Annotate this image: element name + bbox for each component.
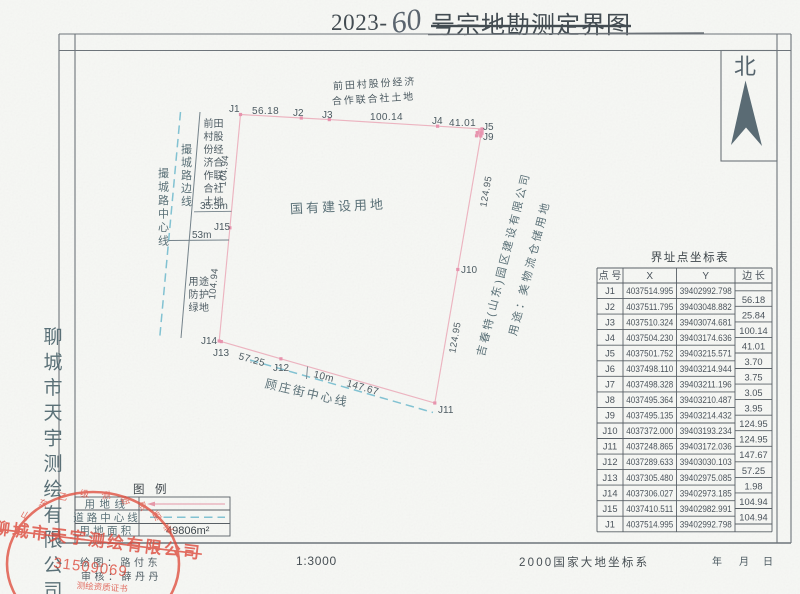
svg-text:4037514.995: 4037514.995 [626, 520, 673, 530]
svg-text:北: 北 [734, 54, 756, 79]
svg-text:60: 60 [389, 3, 424, 41]
svg-text:39403172.036: 39403172.036 [680, 442, 732, 452]
svg-text:39403214.432: 39403214.432 [680, 411, 732, 421]
svg-text:股: 股 [214, 131, 224, 143]
svg-text:作: 作 [204, 170, 214, 182]
svg-text:4037498.110: 4037498.110 [626, 364, 673, 374]
svg-text:X: X [646, 271, 653, 282]
svg-text:J8: J8 [605, 395, 615, 405]
svg-text:4037511.795: 4037511.795 [626, 302, 673, 312]
svg-text:J11: J11 [438, 405, 454, 416]
svg-text:乙: 乙 [58, 491, 69, 502]
svg-text:25.84: 25.84 [742, 310, 765, 320]
svg-text:J4: J4 [605, 333, 615, 343]
svg-text:35.5m: 35.5m [200, 201, 228, 212]
svg-text:124.95: 124.95 [739, 419, 767, 429]
svg-text:39403211.196: 39403211.196 [680, 380, 732, 390]
svg-text:39403215.571: 39403215.571 [680, 348, 732, 358]
svg-text:41.01: 41.01 [449, 118, 476, 129]
svg-text:3.05: 3.05 [744, 388, 762, 398]
svg-text:39402973.185: 39402973.185 [680, 488, 732, 498]
svg-text:J10: J10 [461, 265, 478, 276]
svg-text:测: 测 [101, 490, 111, 501]
svg-text:防: 防 [189, 288, 199, 301]
svg-text:级: 级 [80, 488, 89, 499]
svg-text:57.25: 57.25 [742, 466, 765, 476]
svg-text:4037372.000: 4037372.000 [626, 426, 673, 436]
svg-text:41.01: 41.01 [742, 341, 765, 351]
svg-text:4037501.752: 4037501.752 [626, 348, 673, 358]
svg-text:2000国家大地坐标系: 2000国家大地坐标系 [519, 555, 649, 569]
svg-text:4037305.480: 4037305.480 [626, 473, 673, 483]
svg-text:4037248.865: 4037248.865 [626, 442, 673, 452]
svg-text:J1: J1 [605, 520, 615, 530]
svg-text:份: 份 [204, 144, 214, 156]
svg-text:4037306.027: 4037306.027 [626, 488, 673, 498]
svg-text:1:3000: 1:3000 [296, 554, 337, 568]
svg-text:104.94: 104.94 [739, 513, 767, 523]
svg-text:年: 年 [712, 555, 722, 568]
svg-text:147.67: 147.67 [739, 450, 767, 460]
svg-text:39403030.103: 39403030.103 [680, 457, 732, 467]
svg-text:39403214.944: 39403214.944 [680, 364, 732, 374]
svg-text:地: 地 [199, 301, 209, 314]
svg-text:例: 例 [155, 482, 167, 496]
svg-text:J13: J13 [603, 473, 618, 483]
svg-text:J4: J4 [432, 116, 443, 127]
svg-text:J14: J14 [201, 336, 218, 347]
svg-text:月: 月 [739, 556, 749, 568]
svg-text:56.18: 56.18 [742, 295, 765, 305]
svg-text:3.70: 3.70 [744, 357, 762, 367]
svg-text:J9: J9 [483, 132, 494, 143]
svg-text:39403174.636: 39403174.636 [680, 333, 732, 343]
svg-text:39403193.234: 39403193.234 [680, 426, 732, 436]
svg-text:J6: J6 [605, 364, 615, 374]
svg-text:J2: J2 [605, 302, 615, 312]
svg-text:J1: J1 [605, 286, 615, 296]
svg-text:1.98: 1.98 [744, 481, 762, 491]
svg-text:39402992.798: 39402992.798 [680, 286, 732, 296]
svg-text:39402982.991: 39402982.991 [680, 504, 732, 514]
svg-text:撮城路边线: 撮城路边线 [181, 142, 192, 208]
svg-text:104.94: 104.94 [739, 497, 767, 507]
svg-text:绿: 绿 [189, 301, 199, 314]
svg-text:田: 田 [214, 119, 224, 130]
svg-text:4037495.135: 4037495.135 [626, 411, 673, 421]
svg-text:56.18: 56.18 [252, 106, 279, 117]
svg-text:124.95: 124.95 [739, 435, 767, 445]
svg-text:J5: J5 [605, 348, 615, 358]
svg-text:J12: J12 [273, 363, 290, 374]
svg-text:39403048.882: 39403048.882 [680, 302, 732, 312]
svg-text:4037498.328: 4037498.328 [626, 380, 673, 390]
svg-text:J1: J1 [229, 104, 240, 115]
svg-text:39403210.487: 39403210.487 [680, 395, 732, 405]
svg-text:J11: J11 [603, 442, 617, 452]
svg-text:用: 用 [189, 277, 199, 288]
svg-text:济: 济 [204, 156, 214, 169]
svg-text:前: 前 [204, 117, 214, 130]
svg-text:4037514.995: 4037514.995 [626, 286, 673, 296]
svg-text:道路中心线: 道路中心线 [73, 511, 141, 524]
svg-text:村: 村 [204, 130, 214, 143]
svg-text:经: 经 [214, 143, 224, 156]
svg-text:边 长: 边 长 [742, 270, 765, 282]
svg-text:3.75: 3.75 [744, 373, 762, 383]
svg-text:53m: 53m [192, 230, 211, 241]
svg-text:J9: J9 [605, 411, 615, 421]
svg-text:界址点坐标表: 界址点坐标表 [651, 250, 730, 264]
svg-text:39402992.798: 39402992.798 [680, 520, 732, 530]
svg-text:Y: Y [702, 271, 709, 282]
svg-text:4037410.511: 4037410.511 [626, 504, 673, 514]
svg-text:4037289.633: 4037289.633 [626, 457, 673, 467]
svg-text:J7: J7 [605, 380, 615, 390]
svg-text:合: 合 [204, 182, 214, 195]
svg-text:J13: J13 [213, 348, 230, 359]
svg-text:4037510.324: 4037510.324 [626, 317, 673, 327]
svg-text:J10: J10 [603, 426, 618, 436]
svg-text:撮城路中心线: 撮城路中心线 [158, 166, 169, 248]
svg-text:J15: J15 [214, 222, 231, 233]
svg-text:日: 日 [763, 557, 773, 568]
svg-text:39403074.681: 39403074.681 [680, 317, 732, 327]
svg-text:3.95: 3.95 [744, 404, 762, 414]
svg-text:100.14: 100.14 [739, 326, 767, 336]
svg-text:点 号: 点 号 [599, 270, 622, 282]
svg-text:J3: J3 [605, 317, 615, 327]
svg-text:J12: J12 [603, 457, 618, 467]
svg-text:J2: J2 [293, 108, 304, 119]
svg-text:39402975.085: 39402975.085 [680, 473, 732, 483]
svg-text:J14: J14 [603, 488, 618, 498]
svg-text:图: 图 [133, 483, 145, 496]
svg-text:100.14: 100.14 [370, 112, 403, 123]
svg-text:J15: J15 [603, 504, 618, 514]
svg-text:4037495.364: 4037495.364 [626, 395, 673, 405]
svg-text:2023-: 2023- [331, 10, 388, 35]
svg-text:4037504.230: 4037504.230 [626, 333, 673, 343]
svg-text:J3: J3 [322, 110, 333, 121]
